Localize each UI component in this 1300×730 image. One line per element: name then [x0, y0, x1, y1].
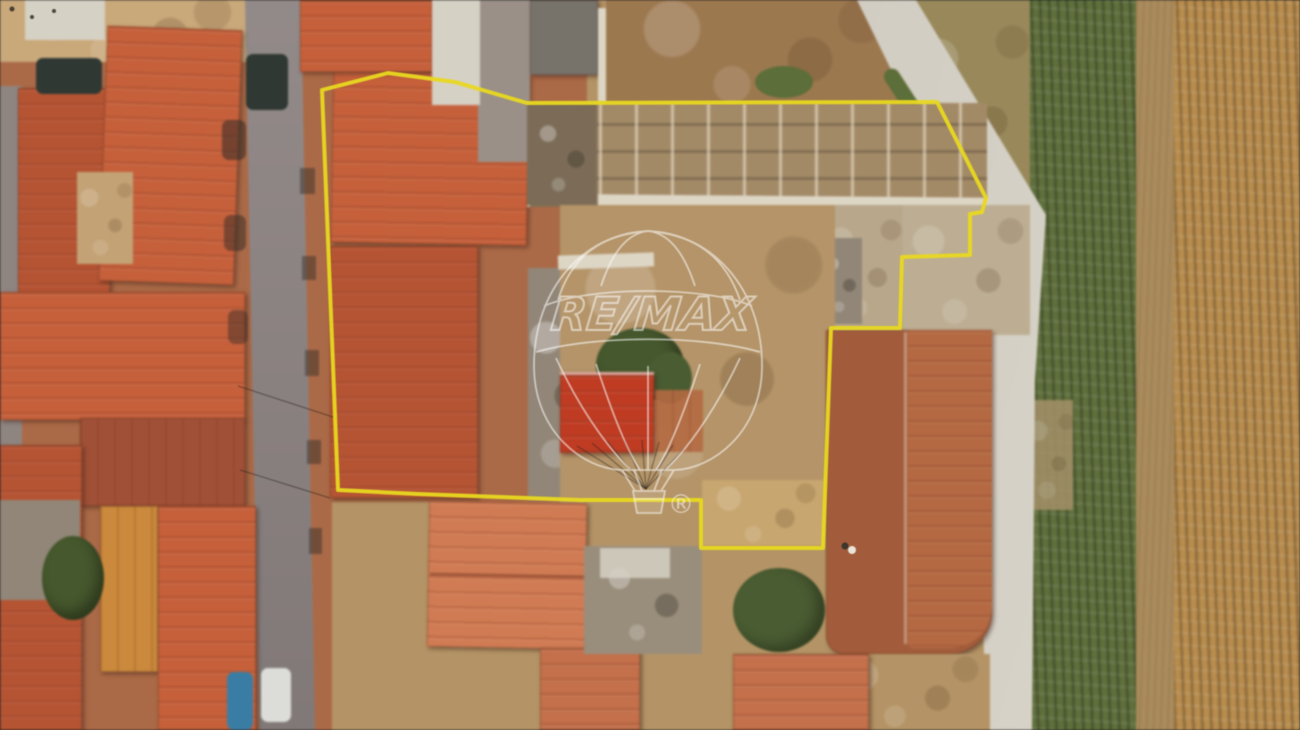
- street-shadow: [224, 215, 246, 251]
- tree-left: [42, 536, 104, 620]
- salmon-roof-lower: [540, 648, 640, 730]
- dark-gray-roof-top: [530, 0, 598, 75]
- top-left-pale-terrace: [25, 0, 105, 40]
- white-van: [261, 668, 291, 722]
- car-on-street: [246, 54, 288, 110]
- vegetation-gap: [1028, 400, 1073, 510]
- red-roof-shed: [560, 372, 654, 453]
- notch-dry-grass: [702, 480, 824, 546]
- roof-ochre: [100, 506, 158, 672]
- ruins-west-wing: [527, 103, 597, 205]
- gray-court-strip: [478, 0, 530, 162]
- field-track: [1136, 0, 1174, 730]
- photo-layer: [0, 0, 1300, 730]
- vegetation-strip: [1028, 0, 1136, 730]
- inner-courtyard: [77, 172, 133, 264]
- roof-ridge-line: [904, 332, 907, 644]
- pale-building-top: [432, 0, 480, 105]
- facade-doorway: [309, 528, 322, 554]
- open-ground-east: [900, 205, 1030, 335]
- shed-annex-roof: [655, 390, 703, 452]
- roof-band-middle: [0, 292, 245, 420]
- roof-dark-brown: [80, 418, 245, 506]
- street-shadow: [222, 120, 246, 160]
- facade-doorway: [305, 350, 319, 376]
- dark-vegetation-south: [733, 568, 825, 652]
- blue-car: [227, 672, 253, 730]
- street-shadow: [228, 310, 248, 344]
- parked-car-dark: [36, 58, 102, 94]
- warehouse-roof-south: [330, 246, 478, 498]
- aerial-photo-canvas: RE/MAX ®: [0, 0, 1300, 730]
- salmon-roof-southeast: [733, 654, 869, 730]
- large-se-roof-east-slope: [908, 330, 992, 648]
- facade-doorway: [307, 440, 321, 464]
- bush-north: [755, 66, 813, 98]
- facade-doorway: [302, 256, 316, 280]
- white-rubble-walls: [600, 548, 670, 578]
- roof-top-strip: [300, 0, 432, 72]
- dry-gold-field: [1174, 0, 1300, 730]
- facade-doorway: [300, 168, 315, 194]
